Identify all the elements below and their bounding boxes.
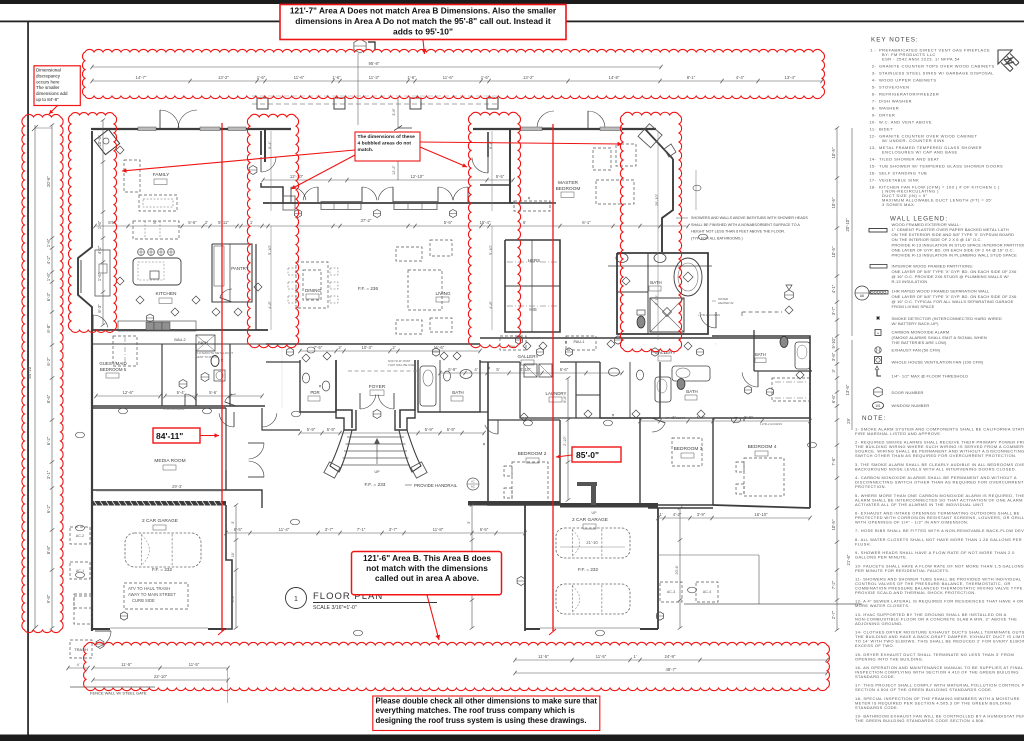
svg-text:OPENING INTO THE BUILDING.: OPENING INTO THE BUILDING.: [855, 656, 924, 661]
svg-text:A6: A6: [860, 294, 864, 298]
svg-text:10'-5": 10'-5": [831, 147, 836, 158]
svg-text:KITCHEN: KITCHEN: [155, 291, 177, 297]
svg-text:6'-6": 6'-6": [560, 367, 569, 372]
svg-text:ADJOINING GROUND.: ADJOINING GROUND.: [855, 621, 903, 626]
svg-text:STOVE/OVEN: STOVE/OVEN: [879, 85, 909, 90]
svg-text:2': 2': [338, 345, 341, 350]
svg-text:W/ UNDER- COUNTER SINK: W/ UNDER- COUNTER SINK: [882, 138, 945, 143]
svg-text:match.: match.: [358, 147, 374, 153]
svg-text:AC-2: AC-2: [76, 534, 84, 538]
svg-text:7'-1": 7'-1": [357, 527, 366, 532]
svg-text:1': 1': [659, 512, 662, 517]
svg-text:3'-1": 3'-1": [46, 470, 51, 479]
svg-text:24'-9": 24'-9": [665, 654, 676, 659]
svg-text:designing the roof truss syste: designing the roof truss system is using…: [376, 716, 587, 725]
svg-text:3'-6": 3'-6": [392, 108, 396, 116]
svg-text:BATH: BATH: [686, 389, 697, 394]
svg-text:11'-5": 11'-5": [189, 662, 200, 667]
svg-text:+LTR-2 ACCESS: +LTR-2 ACCESS: [760, 422, 782, 426]
svg-text:adds to 95'-10": adds to 95'-10": [393, 27, 453, 37]
svg-text:FIRE MARSHAL LISTED AND APPROV: FIRE MARSHAL LISTED AND APPROVE.: [855, 431, 942, 436]
svg-text:1'-6": 1'-6": [46, 238, 51, 247]
svg-text:4'-4": 4'-4": [736, 75, 745, 80]
svg-text:20'-6': 20'-6': [675, 565, 679, 574]
svg-text:6': 6': [672, 415, 675, 420]
svg-text:7'-6": 7'-6": [831, 457, 836, 466]
svg-text:PDR: PDR: [310, 390, 319, 395]
svg-text:PROTECTION.: PROTECTION.: [855, 484, 886, 489]
svg-text:F.F. = 232: F.F. = 232: [152, 567, 172, 572]
svg-text:20'-10": 20'-10": [845, 218, 850, 232]
svg-text:WASHER: WASHER: [879, 106, 899, 111]
svg-text:PROVIDE R-13 INSULATION IN PLU: PROVIDE R-13 INSULATION IN PLUMBING WALL…: [892, 253, 1018, 258]
svg-text:ENCLOSURES W/ CAP AND BASE: ENCLOSURES W/ CAP AND BASE: [882, 149, 958, 154]
svg-text:W.C. AND VENT ABOVE: W.C. AND VENT ABOVE: [879, 120, 932, 125]
svg-text:3'-9': 3'-9': [231, 595, 235, 602]
svg-text:1 -: 1 -: [870, 48, 876, 53]
svg-text:SHALL BE FINISHED WITH A NONAB: SHALL BE FINISHED WITH A NONABSORBENT SU…: [691, 223, 800, 227]
svg-text:13'-2": 13'-2": [523, 75, 534, 80]
svg-text:95'-8": 95'-8": [369, 61, 380, 66]
svg-text:6': 6': [523, 220, 526, 225]
svg-text:121'-6" Area B. This Area B do: 121'-6" Area B. This Area B does: [363, 553, 491, 563]
svg-text:-LTR-2 ACCESS: -LTR-2 ACCESS: [163, 407, 184, 411]
svg-text:AWAY TO MAIN STREET: AWAY TO MAIN STREET: [128, 592, 176, 597]
svg-text:6'-10": 6'-10": [520, 367, 531, 372]
svg-text:not match with the dimensions: not match with the dimensions: [366, 563, 488, 573]
svg-text:16'-10": 16'-10": [754, 512, 768, 517]
svg-text:15'-4": 15'-4": [480, 220, 491, 225]
svg-text:5-: 5-: [872, 85, 877, 90]
svg-text:15-: 15-: [869, 163, 876, 168]
svg-text:PER MINUTE FOR RESIDENTIAL FAU: PER MINUTE FOR RESIDENTIAL FAUCETS.: [855, 568, 950, 573]
svg-text:6'-6": 6'-6": [831, 394, 836, 403]
svg-text:GRANITE COUNTER TOPS OVER WO: GRANITE COUNTER TOPS OVER WOOD CABINETS: [879, 64, 995, 69]
svg-text:BATH: BATH: [198, 341, 208, 345]
svg-text:8- ALL WATER CLOSETS SHALL NOT: 8- ALL WATER CLOSETS SHALL NOT HAVE MORE…: [855, 537, 1022, 542]
svg-text:12'-6": 12'-6": [123, 390, 134, 395]
svg-text:UP: UP: [592, 511, 598, 515]
svg-text:4'-2": 4'-2": [673, 512, 682, 517]
svg-text:10'-5": 10'-5": [831, 519, 836, 530]
svg-text:2 CAR GARAGE: 2 CAR GARAGE: [142, 518, 178, 524]
svg-text:F.F. = 233: F.F. = 233: [365, 482, 386, 488]
svg-text:SELF STANDING TUB: SELF STANDING TUB: [879, 170, 927, 175]
svg-text:PROVIDE SCALD AND THERMAL SHOC: PROVIDE SCALD AND THERMAL SHOCK PROTECTI…: [855, 590, 976, 595]
svg-text:84'-11": 84'-11": [156, 431, 183, 441]
svg-text:4': 4': [474, 367, 477, 372]
svg-text:up to 84'-8": up to 84'-8": [36, 97, 59, 102]
svg-text:FOYER: FOYER: [369, 384, 386, 390]
svg-text:STANDARDS CODE.: STANDARDS CODE.: [855, 705, 899, 710]
svg-text:THE BATTERIES ARE LOW): THE BATTERIES ARE LOW): [892, 340, 948, 345]
svg-text:Please double check all other: Please double check all other dimensions…: [376, 697, 598, 706]
svg-text:7- HOSE BIBS SHALL BE FITTED W: 7- HOSE BIBS SHALL BE FITTED WITH A NON-…: [855, 528, 1024, 533]
svg-text:SHOWERS AND WALLS ABOVE BATHTU: SHOWERS AND WALLS ABOVE BATHTUBS WITH SH…: [691, 216, 808, 220]
svg-text:4-: 4-: [872, 78, 877, 83]
svg-text:✖: ✖: [876, 315, 881, 322]
svg-text:12'-10": 12'-10": [410, 174, 424, 179]
svg-text:4'-2": 4'-2": [46, 255, 51, 264]
svg-text:8'-1": 8'-1": [687, 75, 696, 80]
svg-text:18-: 18-: [869, 184, 876, 189]
svg-text:BEDROOM 3: BEDROOM 3: [674, 446, 703, 452]
svg-text:3'-9": 3'-9": [697, 512, 706, 517]
svg-text:3'-6": 3'-6": [831, 352, 836, 361]
svg-text:ESR - 2542 ANSI 2223. 1/ NFPA.: ESR - 2542 ANSI 2223. 1/ NFPA.54: [882, 57, 960, 62]
svg-text:MASTER: MASTER: [558, 180, 579, 186]
svg-text:occurs here: occurs here: [36, 79, 60, 84]
svg-text:BEDROOM 2: BEDROOM 2: [518, 451, 547, 457]
svg-text:4'-1": 4'-1": [831, 284, 836, 293]
svg-text:4': 4': [77, 663, 80, 667]
svg-text:11'-5": 11'-5": [538, 654, 549, 659]
svg-text:29': 29': [846, 418, 851, 424]
svg-text:VENT TO ROOF: VENT TO ROOF: [196, 355, 218, 359]
svg-text:2-: 2-: [872, 64, 877, 69]
svg-text:5'-5": 5'-5": [188, 220, 197, 225]
svg-text:2 CAR GARAGE: 2 CAR GARAGE: [572, 517, 608, 523]
svg-text:1': 1': [633, 654, 636, 659]
svg-text:5'-9": 5'-9": [447, 427, 456, 432]
svg-text:KEY NOTES:: KEY NOTES:: [871, 37, 919, 44]
svg-text:2': 2': [205, 220, 208, 225]
svg-text:13'-4": 13'-4": [785, 75, 796, 80]
svg-text:THAT WILL BE USED: THAT WILL BE USED: [388, 363, 416, 367]
svg-text:21'-10: 21'-10: [586, 540, 598, 545]
svg-text:12'-10": 12'-10": [290, 174, 304, 179]
svg-text:16-: 16-: [869, 170, 876, 175]
svg-text:discrepancy: discrepancy: [36, 73, 61, 78]
svg-text:HERS: HERS: [528, 258, 540, 263]
svg-text:3'-7": 3'-7": [831, 306, 836, 315]
svg-text:The dimensions of these: The dimensions of these: [358, 134, 416, 140]
svg-text:1': 1': [250, 220, 253, 225]
svg-text:17-: 17-: [869, 177, 876, 182]
svg-text:PANTRY: PANTRY: [231, 266, 248, 271]
svg-text:6'-6": 6'-6": [563, 395, 567, 403]
svg-text:14-: 14-: [869, 156, 876, 161]
svg-text:BIDET: BIDET: [879, 127, 893, 132]
svg-text:ACTIVATES ALL OF THE ALARMS IN: ACTIVATES ALL OF THE ALARMS IN THE INDIV…: [855, 502, 985, 507]
svg-text:2'-7": 2'-7": [831, 610, 836, 619]
svg-text:5'-10": 5'-10": [831, 337, 836, 348]
svg-text:R-13 INSULATION: R-13 INSULATION: [892, 279, 928, 284]
svg-text:5'-4': 5'-4': [177, 390, 185, 395]
svg-text:STAINLESS STEEL SINKS W/ GARBA: STAINLESS STEEL SINKS W/ GARBAGE DISPOSA…: [879, 71, 994, 76]
svg-text:11-: 11-: [870, 127, 877, 132]
svg-text:6'-3": 6'-3": [46, 292, 51, 301]
svg-text:6'-8": 6'-8": [46, 324, 51, 333]
svg-text:14'-7": 14'-7": [136, 75, 147, 80]
svg-text:F.F. = 232: F.F. = 232: [578, 567, 598, 572]
svg-text:×: ×: [528, 196, 531, 202]
svg-text:EXCESS OF TWO.: EXCESS OF TWO.: [855, 643, 894, 648]
svg-text:W/ BATTERY BACK-UP): W/ BATTERY BACK-UP): [892, 321, 940, 326]
svg-text:FROM LIVING SPACE: FROM LIVING SPACE: [892, 304, 935, 309]
svg-text:3 SONES MAX.: 3 SONES MAX.: [882, 202, 916, 207]
svg-text:REFRIGERATOR/FREEZER: REFRIGERATOR/FREEZER: [879, 92, 939, 97]
svg-text:×: ×: [612, 413, 615, 419]
svg-text:5'-9": 5'-9": [307, 427, 316, 432]
svg-text:3': 3': [467, 521, 471, 524]
svg-text:MEDIA ROOM: MEDIA ROOM: [154, 458, 185, 464]
svg-text:BEDROOM 4: BEDROOM 4: [748, 444, 777, 450]
svg-text:The smaller: The smaller: [36, 85, 60, 90]
svg-text:4'-4": 4'-4": [696, 415, 705, 420]
svg-text:29'-3': 29'-3': [172, 484, 182, 489]
svg-text:5': 5': [496, 367, 499, 372]
svg-text:48'-7": 48'-7": [666, 667, 677, 672]
svg-text:121'-7" Area A Does not match: 121'-7" Area A Does not match Area B Dim…: [290, 6, 557, 16]
svg-text:11'-5": 11'-5": [121, 662, 132, 667]
svg-text:8'-6": 8'-6": [46, 394, 51, 403]
svg-text:1'-6": 1'-6": [46, 272, 51, 281]
svg-text:DRYER: DRYER: [879, 113, 895, 118]
svg-text:1/4"- 1/2" MAX @ FLOOR THRESHO: 1/4"- 1/2" MAX @ FLOOR THRESHOLD: [892, 374, 969, 379]
svg-text:WITH OPENINGS OF 1/4" - 1/2" I: WITH OPENINGS OF 1/4" - 1/2" IN ANY DIME…: [855, 520, 969, 525]
svg-text:13'-2": 13'-2": [218, 75, 229, 80]
svg-text:BEDROOM 5: BEDROOM 5: [100, 367, 127, 372]
svg-text:SECTION 4.504 OF THE GREEN BUI: SECTION 4.504 OF THE GREEN BUILDING STAN…: [855, 687, 993, 692]
svg-text:TRASH: TRASH: [74, 647, 88, 652]
svg-text:1'-6": 1'-6": [97, 272, 102, 281]
svg-text:MORE WATER CLOSETS.: MORE WATER CLOSETS.: [855, 603, 910, 608]
svg-text:16': 16': [231, 552, 235, 557]
svg-text:4'-2": 4'-2": [97, 245, 102, 254]
svg-text:5'-9": 5'-9": [327, 427, 336, 432]
svg-text:TILED SHOWER AND SEAT: TILED SHOWER AND SEAT: [879, 156, 940, 161]
svg-text:11'-8": 11'-8": [433, 527, 444, 532]
svg-text:11'-6": 11'-6": [434, 345, 445, 350]
svg-text:dimensions add: dimensions add: [36, 91, 68, 96]
svg-text:8': 8': [153, 220, 156, 225]
svg-text:84'-10": 84'-10": [27, 365, 32, 379]
svg-text:12-: 12-: [869, 134, 876, 139]
svg-text:11'-3": 11'-3": [369, 75, 380, 80]
svg-text:NOTE:: NOTE:: [862, 415, 886, 422]
svg-text:10'-5": 10'-5": [831, 197, 836, 208]
svg-text:8'-8": 8'-8": [46, 545, 51, 554]
svg-text:FENCE WALL W/ STEEL GATE: FENCE WALL W/ STEEL GATE: [90, 691, 147, 696]
svg-text:PAU-1: PAU-1: [574, 340, 585, 344]
svg-text:DOOR NUMBER: DOOR NUMBER: [892, 390, 924, 395]
svg-text:2': 2': [392, 345, 395, 350]
svg-text:HIS: HIS: [529, 307, 536, 312]
svg-text:FLUSH.: FLUSH.: [855, 541, 871, 546]
svg-text:5'-6": 5'-6": [744, 415, 753, 420]
svg-text:EXHAUST FAN (50 CFM): EXHAUST FAN (50 CFM): [892, 348, 941, 353]
svg-text:3': 3': [231, 521, 235, 524]
svg-text:BATH: BATH: [650, 280, 661, 285]
svg-text:GALLONS PER MINUTE.: GALLONS PER MINUTE.: [855, 555, 908, 560]
svg-text:6'-2": 6'-2": [46, 504, 51, 513]
svg-text:6'-3": 6'-3": [97, 304, 102, 313]
svg-text:5'-5": 5'-5": [444, 220, 453, 225]
svg-text:CURB SIDE: CURB SIDE: [132, 598, 155, 603]
svg-text:1'-6": 1'-6": [332, 75, 341, 80]
svg-text:5'-6': 5'-6': [209, 390, 217, 395]
svg-text:5'-11": 5'-11": [218, 220, 229, 225]
svg-text:BAU-2: BAU-2: [174, 338, 185, 342]
svg-text:dimensions in Area A Do not ma: dimensions in Area A Do not match the 95…: [295, 16, 551, 26]
svg-text:3'-7": 3'-7": [325, 527, 334, 532]
svg-text:AC-4: AC-4: [703, 590, 711, 594]
svg-text:10-: 10-: [869, 120, 876, 125]
svg-text:TUB SHOWER W/ TEMPERED GLASS S: TUB SHOWER W/ TEMPERED GLASS SHOWER DOOR…: [879, 163, 1003, 168]
svg-text:BATH: BATH: [452, 390, 463, 395]
svg-text:22'-10": 22'-10": [154, 674, 168, 679]
svg-text:2'-10": 2'-10": [563, 436, 567, 446]
svg-text:8-: 8-: [872, 106, 877, 111]
svg-text:10'-3": 10'-3": [362, 345, 373, 350]
svg-text:SCALE 3/16"=1'-0": SCALE 3/16"=1'-0": [313, 605, 357, 611]
svg-text:85'-0": 85'-0": [576, 450, 599, 460]
svg-text:12'-2": 12'-2": [392, 165, 396, 175]
svg-text:HEATER #2: HEATER #2: [718, 301, 734, 305]
svg-text:BATH: BATH: [755, 352, 766, 357]
svg-text:14'-8": 14'-8": [609, 75, 620, 80]
svg-text:6'-1": 6'-1": [582, 220, 591, 225]
svg-text:6'-2": 6'-2": [46, 357, 51, 366]
svg-text:6'-5": 6'-5": [480, 527, 489, 532]
svg-text:1'-6": 1'-6": [257, 75, 266, 80]
svg-text:7'-2": 7'-2": [831, 580, 836, 589]
svg-text:GALLERY: GALLERY: [517, 354, 538, 359]
svg-text:11'-4": 11'-4": [279, 527, 290, 532]
svg-text:DISH WASHER: DISH WASHER: [879, 99, 912, 104]
svg-text:VEGETABLE SINK: VEGETABLE SINK: [879, 177, 919, 182]
svg-text:1: 1: [294, 596, 298, 603]
svg-text:9'-8": 9'-8": [46, 594, 51, 603]
svg-text:DINING: DINING: [305, 288, 322, 293]
svg-text:BACKGROUND NOISE LEVELS WITH A: BACKGROUND NOISE LEVELS WITH ALL INTERVE…: [855, 466, 1016, 471]
svg-text:11'-5": 11'-5": [596, 654, 607, 659]
svg-text:6'-2": 6'-2": [46, 436, 51, 445]
svg-text:FAMILY: FAMILY: [153, 172, 171, 178]
svg-text:6'-5": 6'-5": [234, 527, 243, 532]
svg-text:13'-6": 13'-6": [845, 384, 850, 395]
svg-text:×: ×: [319, 384, 322, 390]
svg-text:STANDARD CODE.: STANDARD CODE.: [855, 674, 896, 679]
svg-text:×: ×: [483, 442, 486, 448]
svg-text:3': 3': [831, 369, 836, 372]
svg-text:WHOLE HOUSE VENTILATION FAN (1: WHOLE HOUSE VENTILATION FAN (100 CFM): [892, 360, 984, 365]
svg-text:7'-5": 7'-5": [314, 345, 323, 350]
svg-text:5'-9": 5'-9": [425, 427, 434, 432]
svg-text:5'-9": 5'-9": [448, 367, 457, 372]
svg-text:3-: 3-: [872, 71, 877, 76]
svg-text:LIVING: LIVING: [435, 291, 450, 296]
svg-text:SWITCH OTHER THAN AS REQUIRED: SWITCH OTHER THAN AS REQUIRED FOR OVERCU…: [855, 453, 1017, 458]
svg-text:11'-6": 11'-6": [443, 75, 454, 80]
svg-text:WINDOW NUMBER: WINDOW NUMBER: [892, 403, 930, 408]
svg-text:1'-6": 1'-6": [97, 220, 102, 229]
svg-text:7-: 7-: [872, 99, 877, 104]
svg-text:5'-5": 5'-5": [496, 174, 505, 179]
svg-text:1'-6": 1'-6": [481, 75, 490, 80]
svg-text:37'-2": 37'-2": [361, 218, 372, 223]
svg-text:F.F. = 236: F.F. = 236: [358, 286, 378, 291]
svg-text:WOOD UPPER CABINETS: WOOD UPPER CABINETS: [879, 78, 936, 83]
svg-text:13-: 13-: [869, 145, 876, 150]
svg-text:+LTR-2 ACCESS: +LTR-2 ACCESS: [698, 313, 720, 317]
svg-text:21'-6": 21'-6": [846, 554, 851, 565]
svg-text:101: 101: [875, 404, 881, 408]
svg-text:4 bubbled areas do not: 4 bubbled areas do not: [358, 140, 412, 146]
svg-text:called out in area A above.: called out in area A above.: [375, 573, 479, 583]
svg-text:1'-6": 1'-6": [407, 75, 416, 80]
svg-text:10'-5": 10'-5": [831, 246, 836, 257]
svg-text:9-: 9-: [872, 113, 877, 118]
svg-text:11'-6": 11'-6": [294, 75, 305, 80]
svg-text:Dimensional: Dimensional: [36, 68, 61, 73]
svg-text:everything matches. The roof t: everything matches. The roof truss compa…: [376, 706, 576, 715]
svg-text:3'-7": 3'-7": [389, 527, 398, 532]
svg-text:AC-3: AC-3: [667, 590, 675, 594]
svg-text:6-: 6-: [872, 92, 877, 97]
svg-text:THE GREEN BUILDING STANDARDS C: THE GREEN BUILDING STANDARDS CODE SECTIO…: [855, 718, 985, 723]
svg-text:20'-6": 20'-6": [97, 135, 102, 146]
svg-text:UP: UP: [375, 470, 381, 474]
svg-text:HEIGHT NOT LESS THAN 6 FEET AB: HEIGHT NOT LESS THAN 6 FEET ABOVE THE FL…: [691, 230, 785, 234]
svg-text:ATV TO HAUL TRASH: ATV TO HAUL TRASH: [128, 586, 170, 591]
svg-text:BEDROOM: BEDROOM: [556, 186, 581, 192]
svg-text:PROVIDE HANDRAIL: PROVIDE HANDRAIL: [414, 483, 458, 488]
svg-text:20'-6": 20'-6": [46, 176, 51, 187]
